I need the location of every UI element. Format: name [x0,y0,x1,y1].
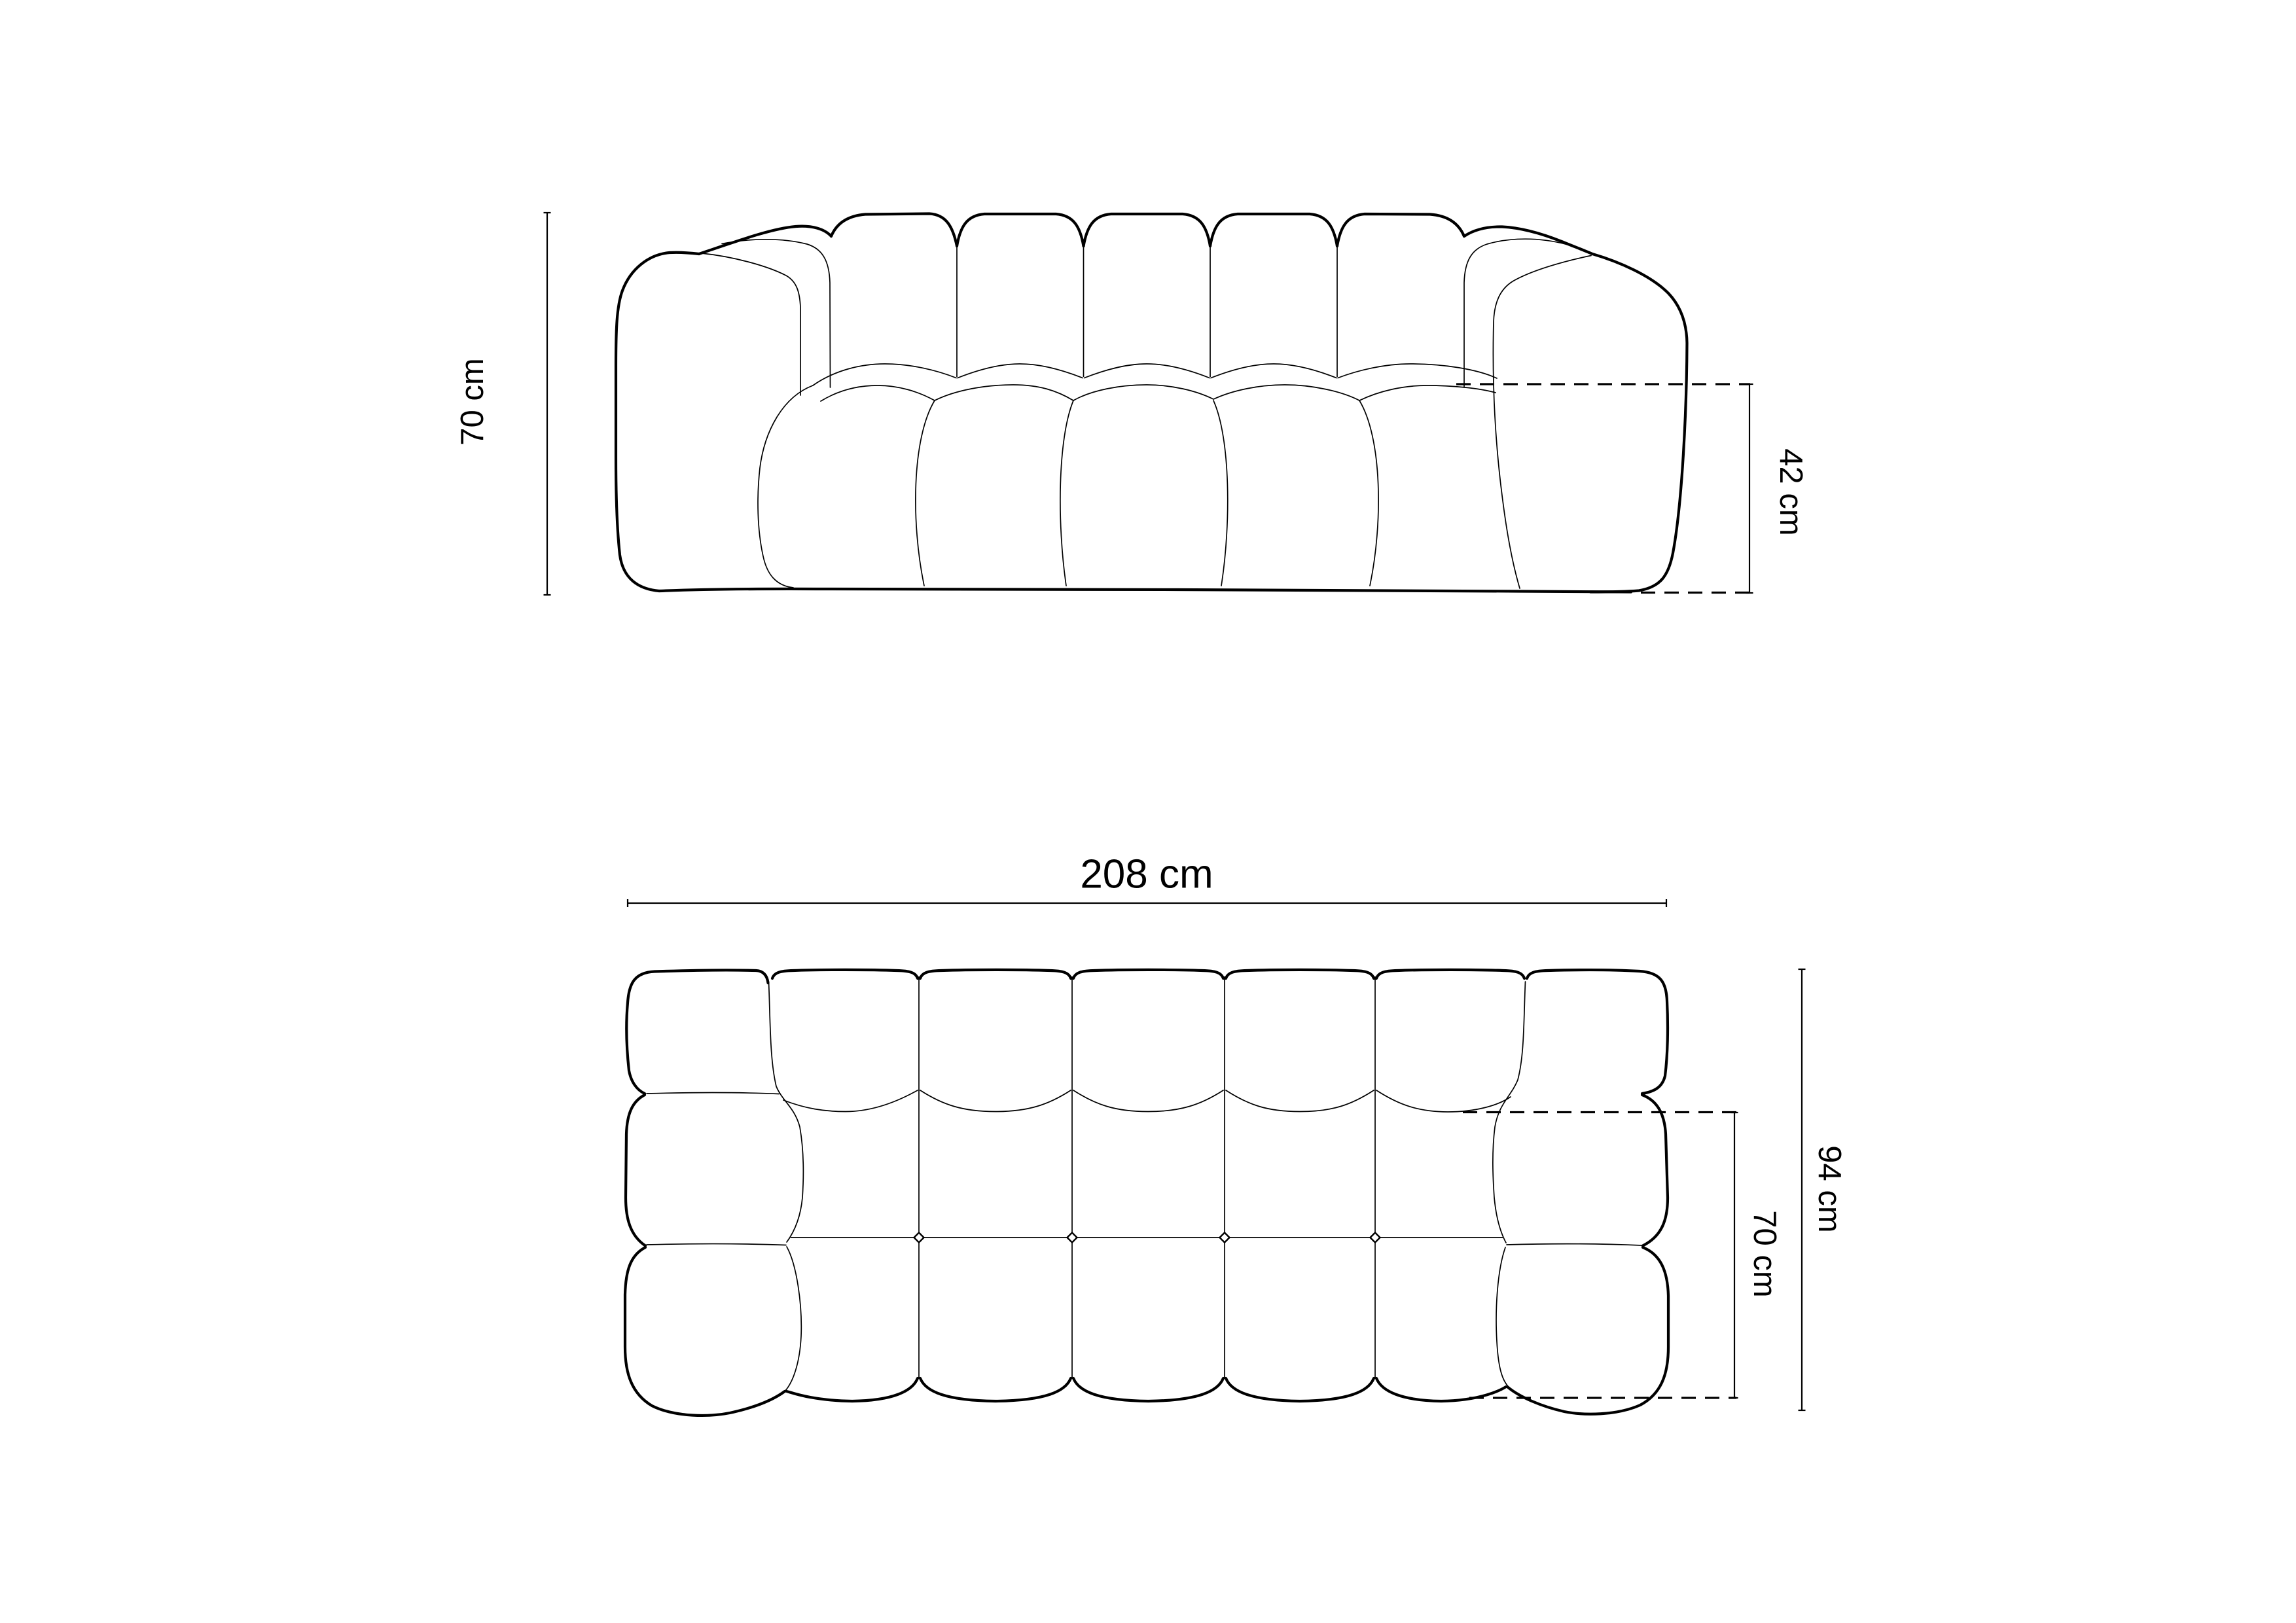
svg-text:70 cm: 70 cm [455,358,490,445]
svg-text:70 cm: 70 cm [1747,1210,1782,1297]
svg-text:208 cm: 208 cm [1080,852,1213,897]
svg-text:42 cm: 42 cm [1773,448,1808,535]
svg-text:94 cm: 94 cm [1812,1145,1847,1232]
